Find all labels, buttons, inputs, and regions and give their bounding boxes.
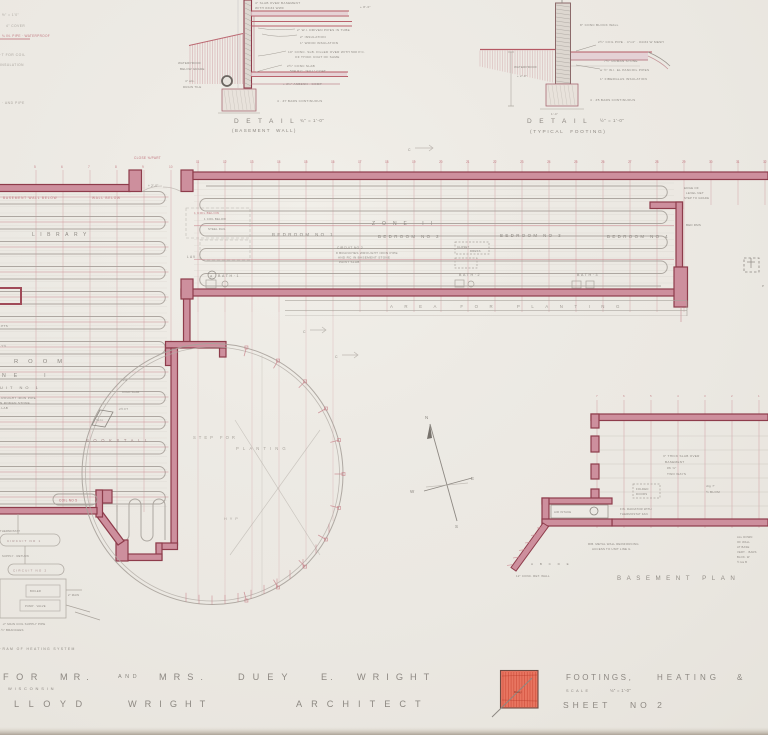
svg-text:¾ IN. PIPE · WATERPROOF: ¾ IN. PIPE · WATERPROOF: [2, 34, 50, 38]
svg-text:Duey: Duey: [514, 690, 522, 694]
svg-text:DETAIL: DETAIL: [527, 118, 594, 125]
svg-text:16: 16: [331, 160, 335, 164]
svg-text:CIRCUIT NO 2: CIRCUIT NO 2: [337, 246, 363, 250]
svg-text:2½" CONC SLAB: 2½" CONC SLAB: [287, 64, 315, 68]
svg-text:BASEMENT WALL BELOW: BASEMENT WALL BELOW: [3, 196, 57, 200]
svg-text:SHEET: SHEET: [563, 700, 611, 710]
svg-text:DRAIN TILE: DRAIN TILE: [183, 85, 201, 89]
svg-text:N: N: [425, 415, 428, 420]
svg-text:LEVEL NET: LEVEL NET: [686, 191, 704, 195]
svg-text:PLANTING: PLANTING: [236, 446, 290, 451]
svg-text:50# P.C. "FILL" COAT: 50# P.C. "FILL" COAT: [290, 69, 326, 73]
svg-text:AND: AND: [118, 674, 140, 680]
svg-text:7½" ROMAN STONE: 7½" ROMAN STONE: [604, 59, 638, 63]
svg-text:N ROMAN STONE: N ROMAN STONE: [0, 401, 30, 405]
svg-text:CIRCUIT NO 2: CIRCUIT NO 2: [13, 569, 47, 573]
svg-text:2" W.I. DRIVEN PIPES IN TUBE: 2" W.I. DRIVEN PIPES IN TUBE: [297, 28, 350, 32]
svg-text:1" FIBERGLAS INSULATION: 1" FIBERGLAS INSULATION: [600, 77, 647, 81]
svg-text:3" THICK SLAB OVER: 3" THICK SLAB OVER: [663, 454, 700, 458]
svg-text:8 BRANCHES WROUGHT IRON PI: 8 BRANCHES WROUGHT IRON PIPE: [336, 251, 398, 255]
svg-text:5: 5: [34, 165, 36, 169]
svg-text:1 COIL BELOW: 1 COIL BELOW: [194, 211, 219, 215]
svg-text:2½" COIL PIPE · 4"x4" · #4/#4: 2½" COIL PIPE · 4"x4" · #4/#4 W MESH: [598, 40, 664, 44]
svg-text:4" COVER: 4" COVER: [6, 24, 25, 28]
svg-text:4 · #7 BARS CONTINUOUS: 4 · #7 BARS CONTINUOUS: [277, 99, 322, 103]
svg-text:8: 8: [115, 165, 117, 169]
svg-text:RIB. METAL WALL REINFORCING: RIB. METAL WALL REINFORCING: [588, 542, 639, 546]
svg-text:w ½" W.I. EL PANCOIL PIPES: w ½" W.I. EL PANCOIL PIPES: [600, 68, 649, 72]
svg-text:4 · #5 BARS CONTINUOUS: 4 · #5 BARS CONTINUOUS: [590, 98, 635, 102]
svg-text:WALL BELOW: WALL BELOW: [92, 196, 121, 200]
svg-text:11: 11: [196, 160, 200, 164]
svg-text:AREA FOR PLANTING: AREA FOR PLANTING: [390, 304, 631, 309]
svg-text:BOOKSTALL: BOOKSTALL: [86, 438, 152, 443]
svg-text:ACCESS TO UNIT LINE G: ACCESS TO UNIT LINE G: [592, 547, 631, 551]
svg-text:·LAB: ·LAB: [0, 406, 8, 410]
svg-text:E: E: [471, 476, 474, 481]
svg-text:SCALE: SCALE: [566, 689, 590, 693]
svg-text:LLOYD: LLOYD: [14, 699, 92, 709]
svg-text:22: 22: [493, 160, 497, 164]
svg-text:LIBRARY: LIBRARY: [32, 232, 92, 238]
svg-text:· 1⅛: · 1⅛: [120, 378, 127, 382]
svg-text:14: 14: [277, 160, 281, 164]
svg-text:AND RC IN BASEMENT STONE: AND RC IN BASEMENT STONE: [338, 256, 390, 260]
svg-text:6: 6: [61, 165, 63, 169]
svg-text:STEEL RAIL: STEEL RAIL: [208, 227, 226, 231]
svg-text:FOLDED: FOLDED: [636, 487, 649, 491]
svg-text:BASEMENT PLAN: BASEMENT PLAN: [617, 575, 740, 582]
svg-text:½" = 1'-0": ½" = 1'-0": [600, 117, 624, 123]
svg-text:COIL NO 5: COIL NO 5: [59, 499, 77, 503]
svg-text:PAINT SLAB: PAINT SLAB: [339, 260, 360, 264]
svg-text:10: 10: [169, 165, 173, 169]
svg-text:2" INSULATION: 2" INSULATION: [300, 35, 326, 39]
svg-text:WISCONSIN: WISCONSIN: [8, 686, 56, 691]
svg-text:12" CONC. RET. WALL: 12" CONC. RET. WALL: [516, 574, 550, 578]
svg-text:DOORS: DOORS: [636, 492, 647, 496]
svg-text:·ROUGHT IRON PIPE: ·ROUGHT IRON PIPE: [0, 396, 36, 400]
svg-text:HEATING: HEATING: [657, 673, 720, 682]
svg-text:·2" MAIN COIL SUPPLY PIPE: ·2" MAIN COIL SUPPLY PIPE: [2, 622, 45, 626]
svg-text:WRIGHT: WRIGHT: [357, 672, 436, 682]
svg-text:32: 32: [763, 160, 767, 164]
svg-text:BEDROOM NO 3: BEDROOM NO 3: [500, 233, 563, 238]
svg-text:12: 12: [223, 160, 227, 164]
svg-text:15: 15: [304, 160, 308, 164]
svg-text:&: &: [737, 673, 743, 682]
svg-text:17: 17: [358, 160, 362, 164]
svg-text:HYP: HYP: [224, 517, 241, 521]
svg-text:WATERPROOF: WATERPROOF: [514, 65, 537, 69]
svg-text:NE I: NE I: [2, 373, 54, 379]
svg-text:BELOW GRADE: BELOW GRADE: [180, 67, 205, 71]
svg-text:BEDROOM NO 1: BEDROOM NO 1: [272, 232, 335, 237]
svg-text:DRESS: DRESS: [470, 249, 481, 253]
svg-text:VERT. · BARS: VERT. · BARS: [737, 550, 757, 554]
svg-text:½" = 1'0": ½" = 1'0": [2, 13, 19, 17]
svg-text:DETAIL: DETAIL: [234, 118, 301, 125]
svg-text:28: 28: [655, 160, 659, 164]
svg-text:26: 26: [601, 160, 605, 164]
svg-text:FOOTINGS,: FOOTINGS,: [566, 673, 633, 682]
svg-text:WRIGHT: WRIGHT: [128, 699, 213, 709]
svg-text:13: 13: [250, 160, 254, 164]
svg-text:BASEMENT: BASEMENT: [665, 460, 684, 464]
svg-text:19: 19: [412, 160, 416, 164]
svg-text:E.: E.: [321, 672, 336, 682]
svg-text:CLOSET: CLOSET: [457, 245, 469, 249]
svg-text:AIR INTAKE: AIR INTAKE: [554, 510, 571, 514]
svg-text:1 COIL BELOW: 1 COIL BELOW: [204, 217, 226, 221]
svg-text:18: 18: [385, 160, 389, 164]
svg-text:BLOK. W: BLOK. W: [737, 555, 750, 559]
svg-text:21: 21: [466, 160, 470, 164]
svg-text:WITH #3/#4 WWF: WITH #3/#4 WWF: [255, 6, 284, 10]
svg-text:BEDROOM NO 4: BEDROOM NO 4: [607, 234, 670, 239]
svg-text:dig 7': dig 7': [706, 484, 715, 488]
svg-text:WATERPROOF: WATERPROOF: [178, 61, 201, 65]
svg-text:+ 2¼" ASBESN · COMP: + 2¼" ASBESN · COMP: [283, 82, 322, 86]
svg-text:1'-4": 1'-4": [551, 112, 558, 116]
svg-text:EDGE OF: EDGE OF: [684, 186, 699, 190]
svg-text:UIT NO 1: UIT NO 1: [0, 385, 41, 390]
svg-text:THERMOSTAT: THERMOSTAT: [0, 529, 20, 533]
svg-text:STEP TO GRADE: STEP TO GRADE: [684, 196, 709, 200]
svg-text:P: P: [762, 284, 764, 288]
svg-text:MRS.: MRS.: [159, 672, 210, 682]
svg-text:TWO WAYS: TWO WAYS: [667, 472, 686, 476]
svg-text:(BASEMENT WALL): (BASEMENT WALL): [232, 128, 297, 133]
svg-text:4" SLAB OVER BASEMENT: 4" SLAB OVER BASEMENT: [255, 1, 300, 5]
svg-text:·2½ FT: ·2½ FT: [118, 407, 128, 411]
svg-text:STEP FOR: STEP FOR: [193, 435, 238, 440]
svg-text:ALL DOWN: ALL DOWN: [737, 535, 753, 539]
svg-text:4" AG.: 4" AG.: [185, 79, 195, 83]
svg-text:·Y½: ·Y½: [0, 344, 7, 348]
svg-text:31: 31: [736, 160, 740, 164]
svg-text:·PTS: ·PTS: [0, 324, 8, 328]
svg-text:30: 30: [709, 160, 713, 164]
svg-text:COLD SLAB: COLD SLAB: [122, 390, 140, 394]
svg-text:1" WOOD INSULATION: 1" WOOD INSULATION: [300, 41, 338, 45]
svg-text:CLOSE ⅜/PART: CLOSE ⅜/PART: [134, 156, 161, 160]
svg-text:10" CONC. SLB. FILLED OVER WIT: 10" CONC. SLB. FILLED OVER WITH 50# P.C.: [288, 50, 365, 54]
svg-text:BEDROOM NO 2: BEDROOM NO 2: [378, 234, 441, 239]
svg-text:½ Ha B: ½ Ha B: [737, 560, 747, 564]
svg-text:⅛" = 1'-0": ⅛" = 1'-0": [610, 688, 631, 693]
svg-text:A B C D E: A B C D E: [531, 562, 572, 566]
svg-text:INSULATION: INSULATION: [0, 63, 24, 67]
svg-text:AT BASE: AT BASE: [737, 545, 750, 549]
svg-text:½ BLOM: ½ BLOM: [706, 490, 720, 494]
svg-text:· AND PIPE: · AND PIPE: [2, 101, 25, 105]
svg-text:·T FOR COIL: ·T FOR COIL: [0, 53, 26, 57]
svg-text:FOR: FOR: [3, 672, 45, 682]
svg-text:FIN. RADIATOR WITH: FIN. RADIATOR WITH: [620, 507, 652, 511]
svg-text:9: 9: [142, 165, 144, 169]
svg-text:ZONE II: ZONE II: [372, 221, 439, 227]
svg-text:NO 2: NO 2: [630, 700, 666, 710]
svg-text:OF THICK COAT OF SAME: OF THICK COAT OF SAME: [295, 55, 340, 59]
svg-text:27: 27: [628, 160, 632, 164]
svg-text:¾" = 1'-0": ¾" = 1'-0": [300, 118, 324, 123]
svg-text:THERMOSTAT FAN: THERMOSTAT FAN: [620, 512, 648, 516]
svg-text:2" MAIN: 2" MAIN: [68, 593, 79, 597]
svg-text:23: 23: [520, 160, 524, 164]
svg-text:+ 8'-0": + 8'-0": [360, 5, 371, 9]
svg-text:+ 2'-0": + 2'-0": [517, 74, 527, 78]
svg-text:24: 24: [547, 160, 551, 164]
svg-text:8" CONC BLOCK WALL: 8" CONC BLOCK WALL: [580, 23, 619, 27]
svg-text:PUMP · VALVE: PUMP · VALVE: [25, 604, 46, 608]
svg-text:LAV: LAV: [187, 255, 196, 259]
svg-text:SEAL: SEAL: [96, 418, 104, 422]
svg-text:BED RMS: BED RMS: [686, 223, 701, 227]
svg-text:CIRCUIT NO 1: CIRCUIT NO 1: [7, 539, 41, 543]
svg-text:MR.: MR.: [60, 672, 95, 682]
svg-text:BATH·3: BATH·3: [577, 273, 599, 277]
svg-text:·½" BRANCHES: ·½" BRANCHES: [0, 628, 24, 632]
svg-text:#6 ⅝": #6 ⅝": [667, 466, 676, 470]
svg-text:BATH·1: BATH·1: [218, 274, 240, 278]
svg-text:7: 7: [88, 165, 90, 169]
svg-text:·RAM OF HEATING SYSTEM: ·RAM OF HEATING SYSTEM: [0, 647, 76, 651]
svg-text:DUEY: DUEY: [238, 672, 296, 682]
svg-text:ARCHITECT: ARCHITECT: [296, 699, 430, 709]
svg-text:ROOM: ROOM: [14, 359, 72, 365]
svg-text:29: 29: [682, 160, 686, 164]
svg-text:25: 25: [574, 160, 578, 164]
svg-text:BOILER: BOILER: [30, 589, 41, 593]
svg-text:S: S: [455, 524, 458, 529]
svg-text:BATH·2: BATH·2: [459, 273, 481, 277]
svg-text:(TYPICAL FOOTING): (TYPICAL FOOTING): [530, 129, 607, 135]
svg-text:OF WALL: OF WALL: [737, 540, 750, 544]
svg-text:20: 20: [439, 160, 443, 164]
